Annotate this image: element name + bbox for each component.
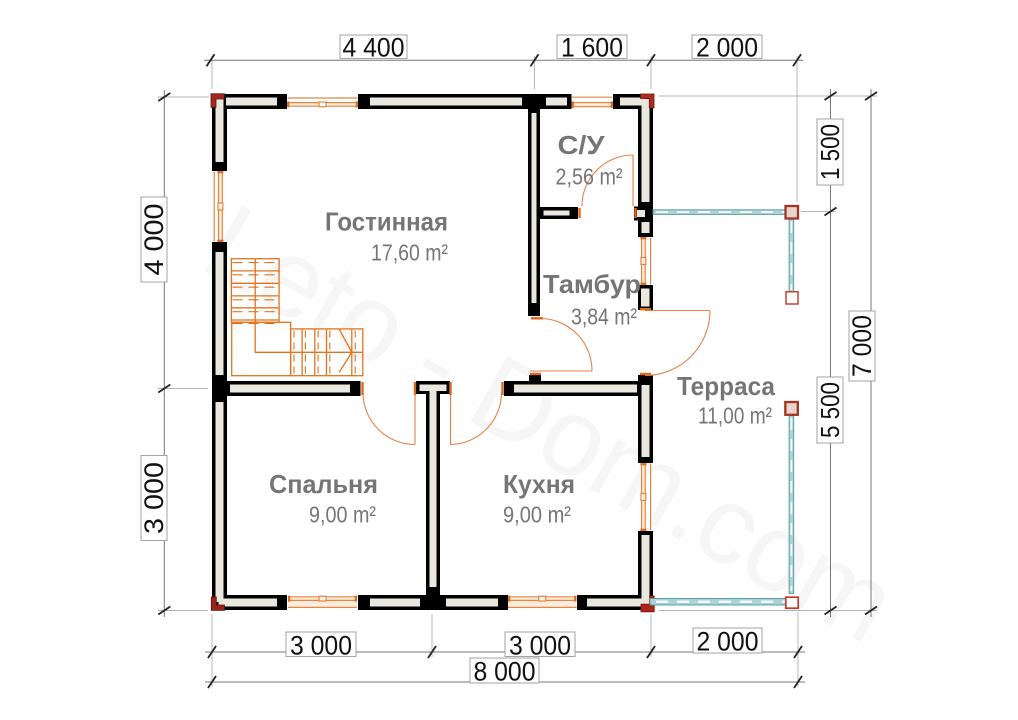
svg-text:9,00 m²: 9,00 m² bbox=[309, 502, 376, 528]
svg-text:3 000: 3 000 bbox=[290, 631, 352, 661]
svg-text:2,56 m²: 2,56 m² bbox=[556, 164, 623, 190]
svg-text:1 600: 1 600 bbox=[561, 33, 623, 63]
svg-text:5 500: 5 500 bbox=[815, 382, 845, 438]
svg-text:11,00 m²: 11,00 m² bbox=[698, 403, 772, 429]
svg-text:8 000: 8 000 bbox=[474, 657, 536, 687]
svg-text:2 000: 2 000 bbox=[696, 33, 758, 63]
svg-text:Гостинная: Гостинная bbox=[325, 207, 448, 237]
svg-text:4 400: 4 400 bbox=[343, 33, 405, 63]
svg-text:Тамбур: Тамбур bbox=[543, 269, 641, 299]
svg-text:4 000: 4 000 bbox=[139, 204, 169, 276]
svg-text:3 000: 3 000 bbox=[139, 462, 169, 534]
svg-text:Кухня: Кухня bbox=[503, 469, 575, 499]
svg-text:Спальня: Спальня bbox=[269, 469, 378, 499]
svg-text:7 000: 7 000 bbox=[847, 315, 877, 377]
svg-text:9,00 m²: 9,00 m² bbox=[503, 502, 571, 528]
svg-text:1 500: 1 500 bbox=[815, 124, 845, 180]
svg-text:3,84 m²: 3,84 m² bbox=[571, 304, 637, 330]
svg-text:17,60 m²: 17,60 m² bbox=[371, 240, 448, 266]
svg-text:Терраса: Терраса bbox=[677, 371, 775, 401]
svg-text:2 000: 2 000 bbox=[697, 627, 759, 657]
svg-text:С/У: С/У bbox=[558, 130, 606, 160]
